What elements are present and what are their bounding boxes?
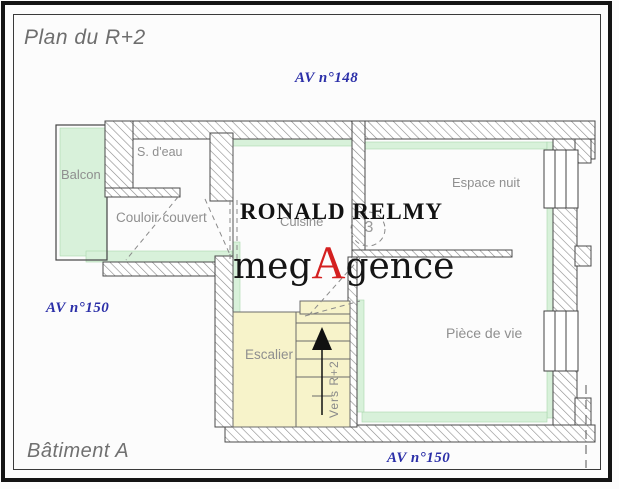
balcon-area	[60, 128, 107, 256]
room-label-espace-nuit: Espace nuit	[452, 175, 520, 190]
agent-name-watermark: RONALD RELMY	[240, 199, 443, 225]
brand-prefix: meg	[233, 249, 312, 285]
window-espace-nuit	[544, 150, 578, 208]
room-label-escalier: Escalier	[245, 347, 293, 362]
room-label-piece-de-vie: Pièce de vie	[446, 325, 522, 341]
room-label-couloir-couvert: Couloir couvert	[116, 210, 207, 225]
avenue-label-top: AV n°148	[295, 70, 358, 87]
avenue-label-bottom: AV n°150	[387, 450, 450, 467]
window-piece-de-vie	[544, 311, 578, 371]
brand-watermark: meg A gence	[233, 240, 454, 287]
floor-plan-page: Plan du R+2 Bâtiment A AV n°148 AV n°150…	[0, 0, 619, 489]
building-label: Bâtiment A	[27, 440, 129, 463]
brand-suffix: gence	[345, 249, 454, 285]
room-label-balcon: Balcon	[61, 167, 101, 182]
page-title: Plan du R+2	[24, 26, 146, 50]
room-label-salle-deau: S. d'eau	[137, 145, 182, 159]
avenue-label-left: AV n°150	[46, 300, 109, 317]
brand-accent-letter: A	[312, 240, 346, 287]
stair-direction-label: Vers R+2	[327, 340, 341, 418]
